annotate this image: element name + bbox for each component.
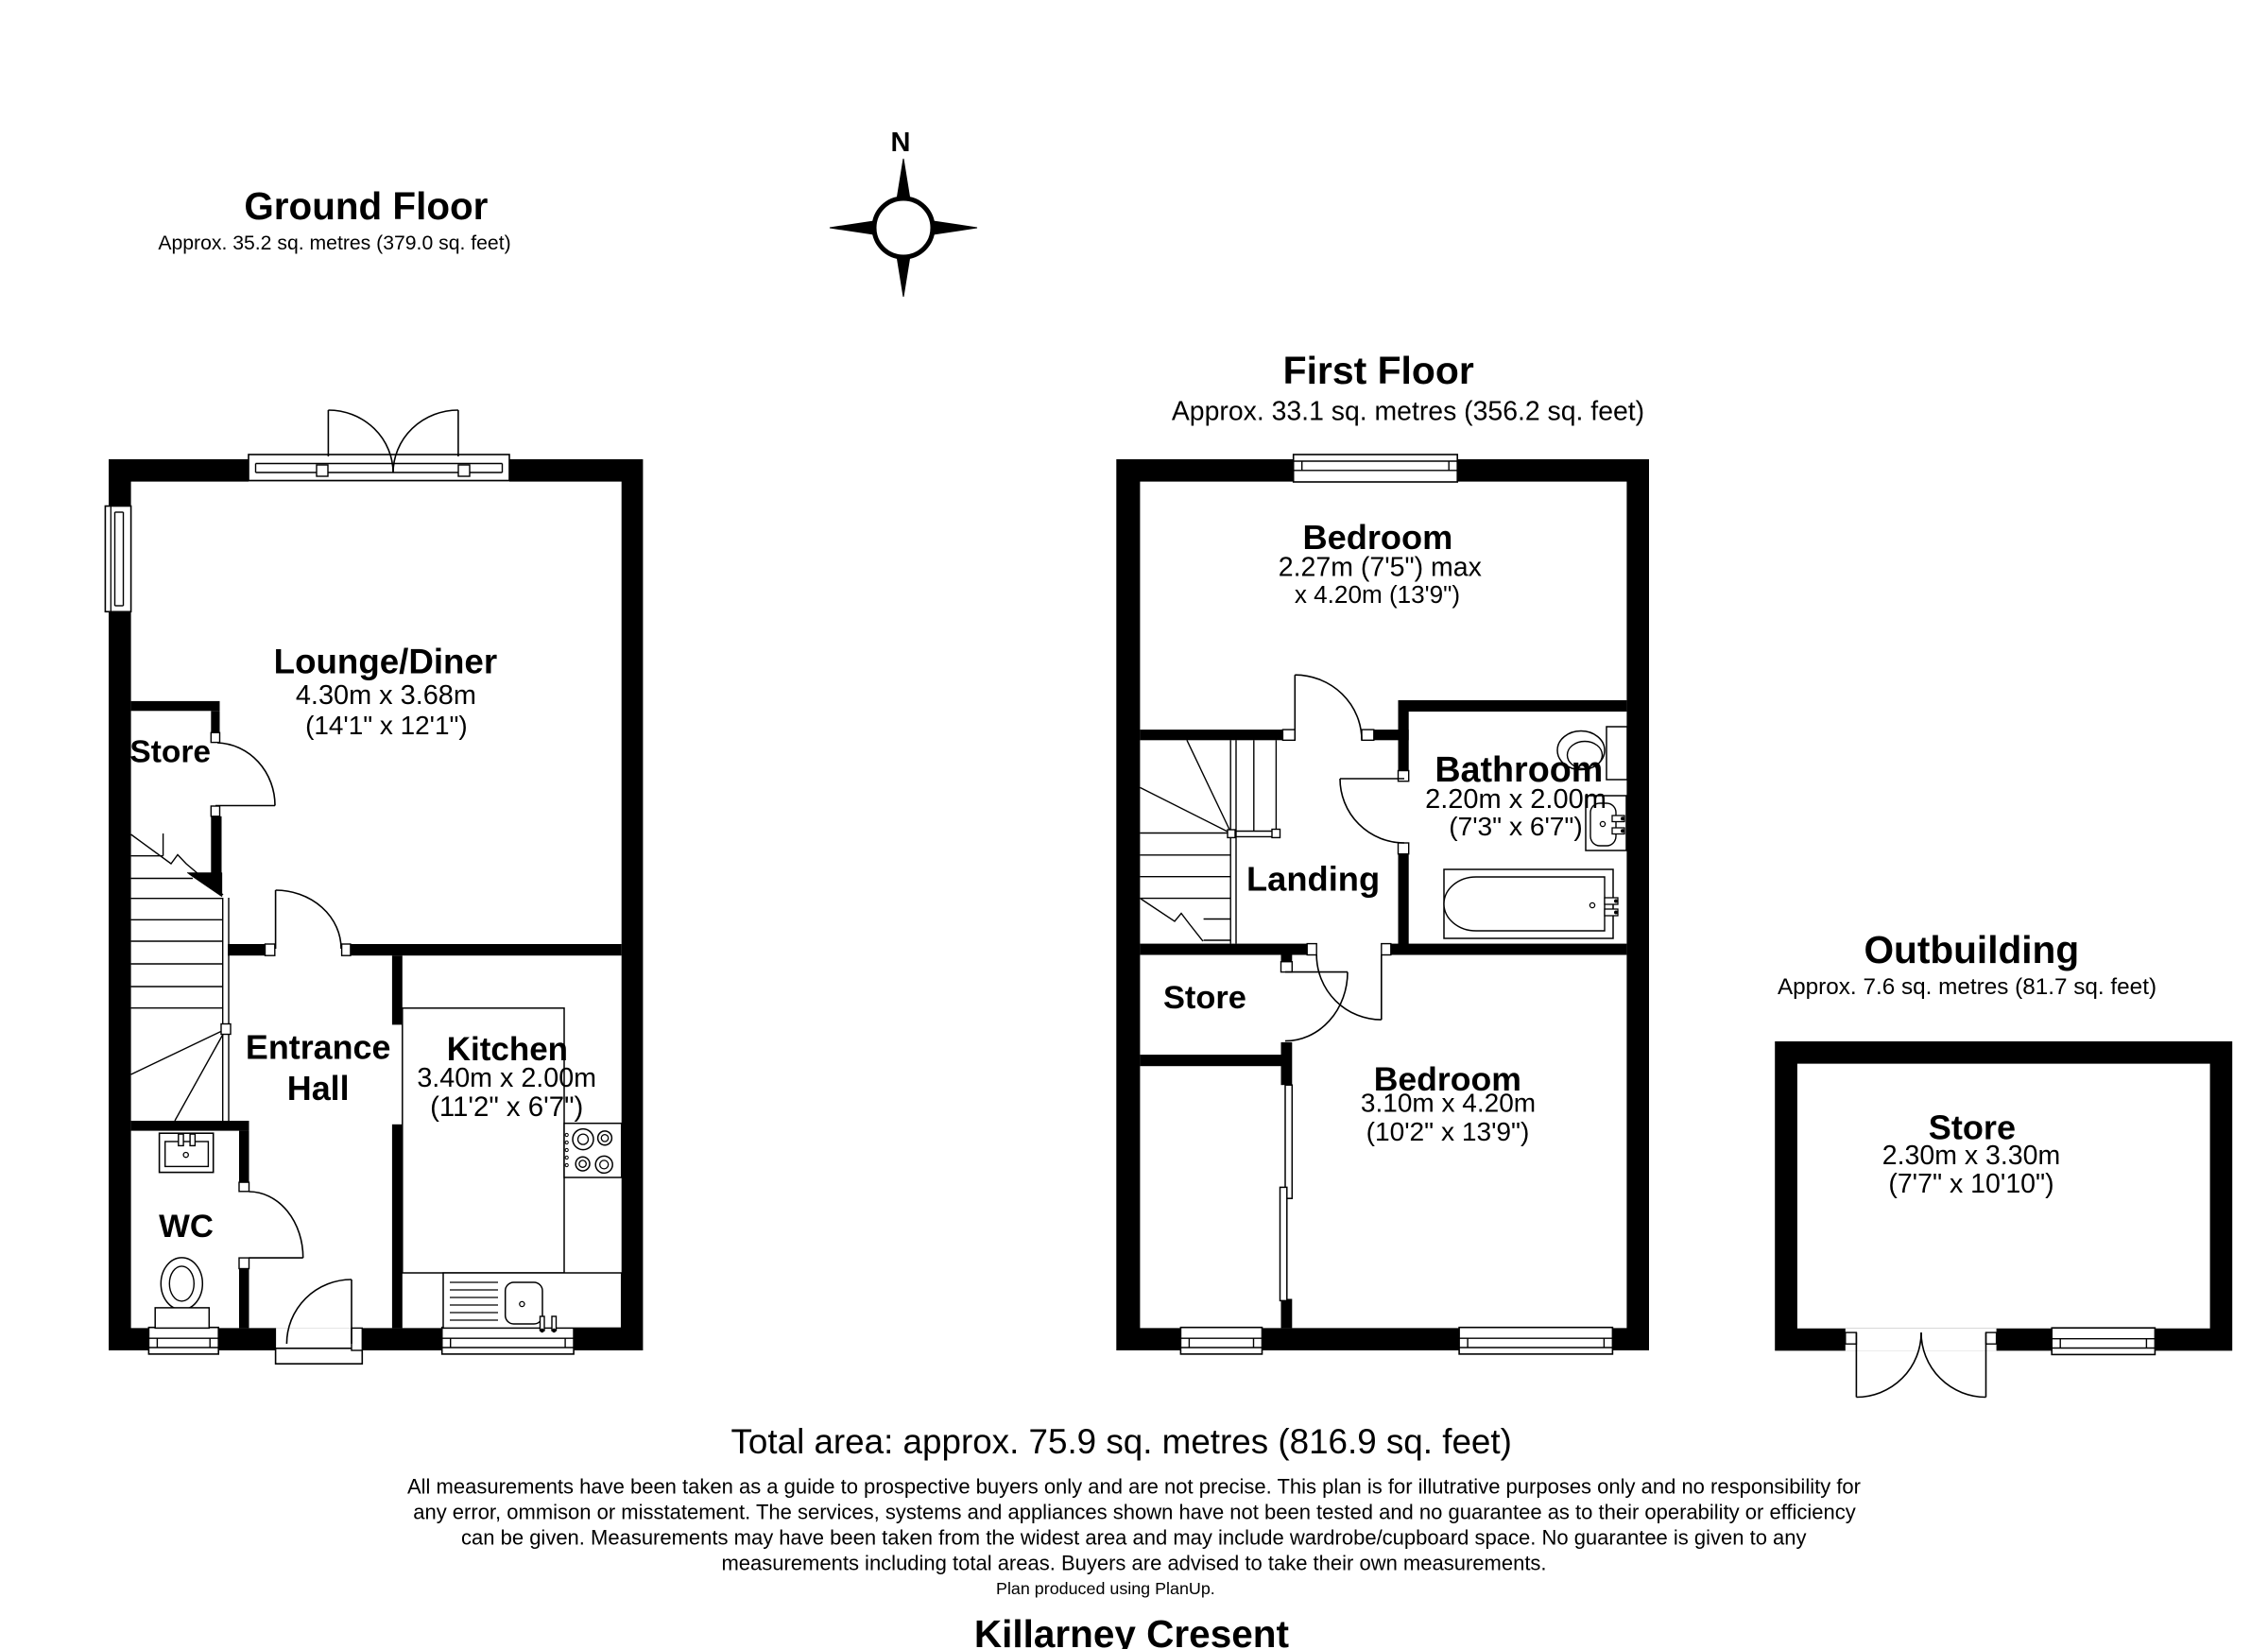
svg-text:4.30m x 3.68m: 4.30m x 3.68m xyxy=(296,680,476,711)
svg-text:Approx. 35.2 sq. metres (379.0: Approx. 35.2 sq. metres (379.0 sq. feet) xyxy=(158,232,510,254)
svg-text:Landing: Landing xyxy=(1246,859,1380,898)
svg-text:Approx. 33.1 sq. metres (356.2: Approx. 33.1 sq. metres (356.2 sq. feet) xyxy=(1172,397,1644,427)
svg-text:3.40m x 2.00m: 3.40m x 2.00m xyxy=(417,1063,596,1093)
svg-text:Store: Store xyxy=(129,735,211,770)
svg-text:2.20m x 2.00m: 2.20m x 2.00m xyxy=(1425,784,1606,815)
svg-text:N: N xyxy=(891,128,911,158)
svg-text:First Floor: First Floor xyxy=(1283,349,1474,392)
svg-text:Bathroom: Bathroom xyxy=(1435,749,1603,789)
svg-text:Lounge/Diner: Lounge/Diner xyxy=(274,642,497,680)
svg-text:Store: Store xyxy=(1163,980,1246,1016)
svg-text:Approx. 7.6 sq. metres (81.7 s: Approx. 7.6 sq. metres (81.7 sq. feet) xyxy=(1778,974,2156,1000)
svg-text:(7'3" x 6'7"): (7'3" x 6'7") xyxy=(1449,812,1583,841)
svg-text:2.30m x 3.30m: 2.30m x 3.30m xyxy=(1882,1141,2061,1171)
svg-text:(10'2" x 13'9"): (10'2" x 13'9") xyxy=(1366,1117,1530,1146)
svg-text:measurements including total a: measurements including total areas. Buye… xyxy=(721,1552,1546,1575)
svg-text:2.27m (7'5") max: 2.27m (7'5") max xyxy=(1279,552,1482,582)
svg-text:Killarney Cresent: Killarney Cresent xyxy=(974,1612,1289,1649)
svg-text:WC: WC xyxy=(159,1209,214,1245)
svg-text:Entrance: Entrance xyxy=(246,1029,391,1067)
svg-text:can be given. Measurements may: can be given. Measurements may have been… xyxy=(461,1526,1807,1550)
svg-text:Hall: Hall xyxy=(287,1070,350,1108)
svg-text:any error, ommison or misstate: any error, ommison or misstatement. The … xyxy=(413,1501,1856,1524)
svg-text:x 4.20m (13'9"): x 4.20m (13'9") xyxy=(1295,580,1460,609)
svg-text:Ground Floor: Ground Floor xyxy=(244,184,488,228)
svg-text:Plan produced using PlanUp.: Plan produced using PlanUp. xyxy=(996,1579,1215,1598)
svg-text:(7'7" x 10'10"): (7'7" x 10'10") xyxy=(1888,1169,2053,1199)
svg-text:(11'2" x 6'7"): (11'2" x 6'7") xyxy=(430,1091,583,1123)
svg-text:3.10m x 4.20m: 3.10m x 4.20m xyxy=(1361,1089,1536,1118)
svg-text:(14'1" x 12'1"): (14'1" x 12'1") xyxy=(305,711,468,740)
svg-text:All measurements have been tak: All measurements have been taken as a gu… xyxy=(407,1475,1861,1499)
svg-text:Outbuilding: Outbuilding xyxy=(1864,928,2079,971)
svg-text:Total area: approx. 75.9 sq. m: Total area: approx. 75.9 sq. metres (816… xyxy=(731,1422,1512,1461)
svg-text:Bedroom: Bedroom xyxy=(1302,518,1452,557)
